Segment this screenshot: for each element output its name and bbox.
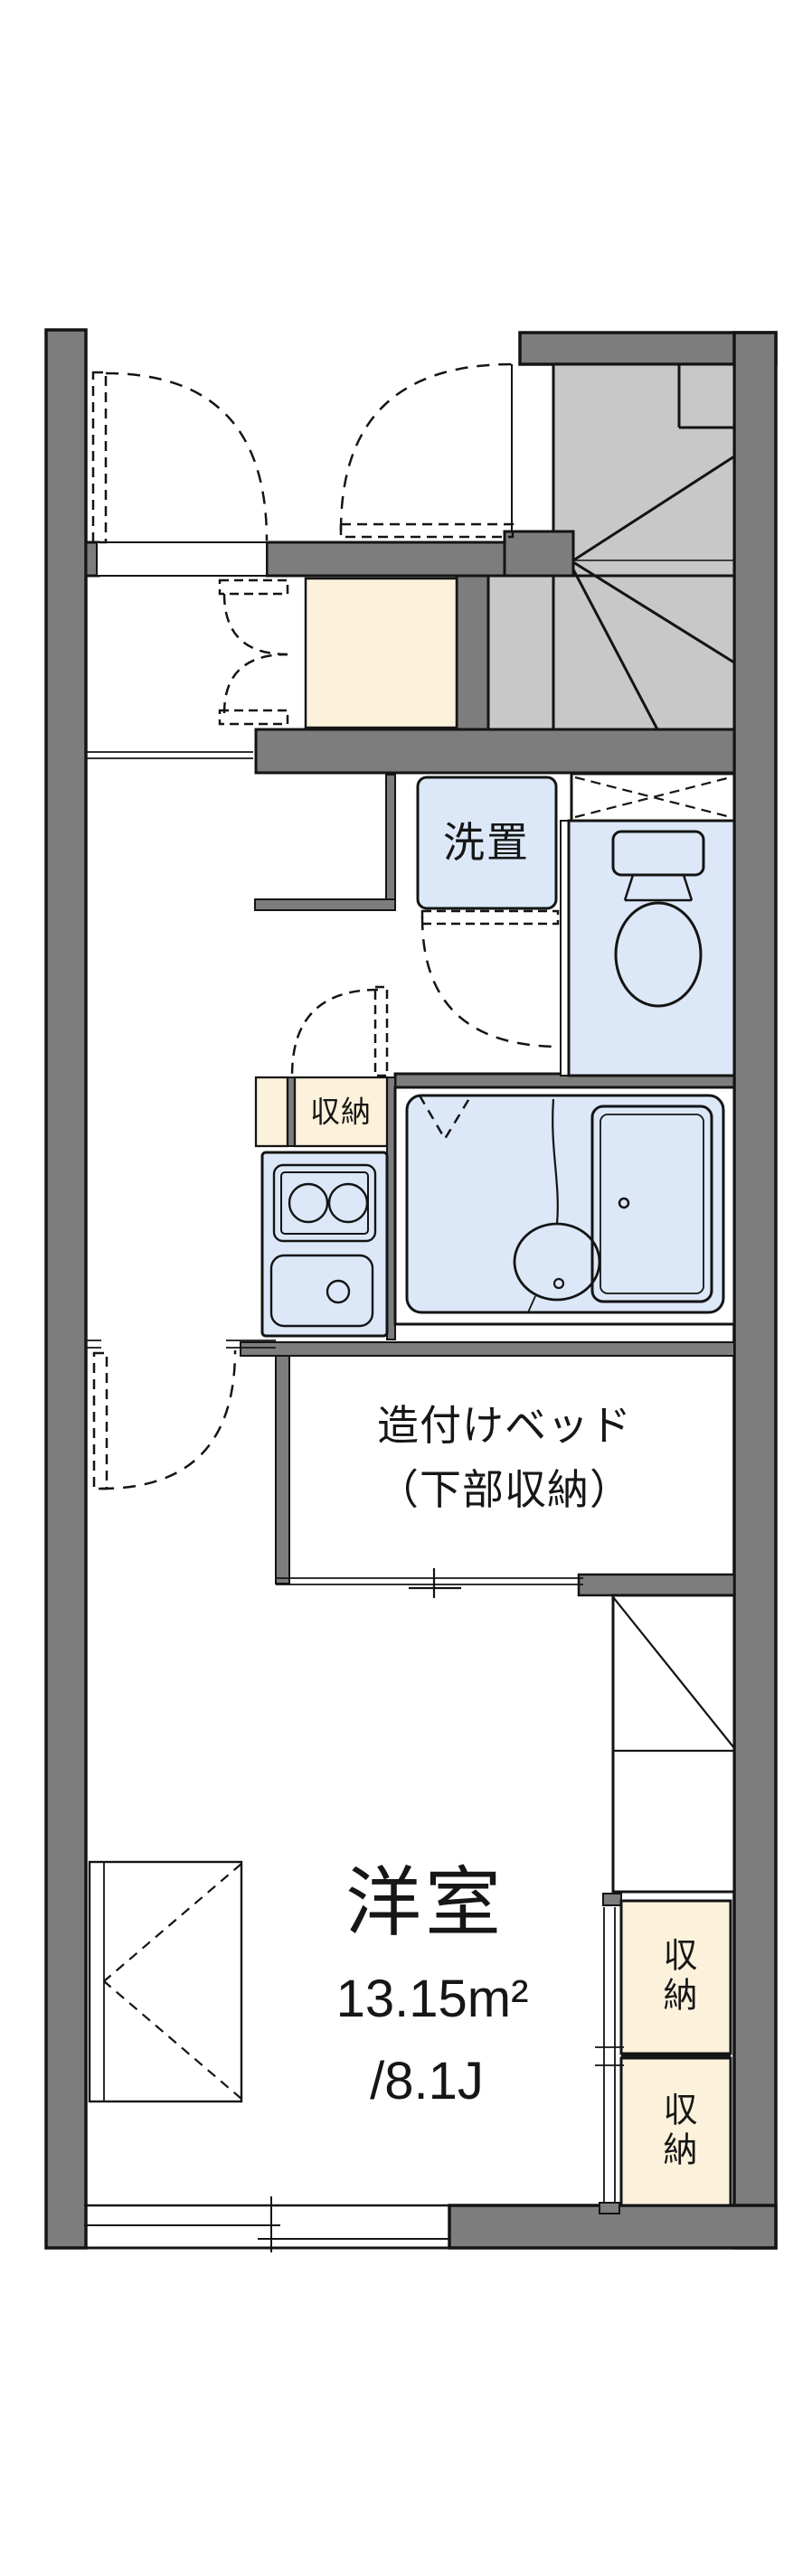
wall-washroom-left bbox=[386, 775, 395, 910]
kitchen-storage-small bbox=[256, 1077, 288, 1146]
bottom-window bbox=[46, 2196, 449, 2252]
entry-door-left bbox=[93, 372, 267, 542]
western-room-area-jo: /8.1J bbox=[370, 2055, 484, 2108]
storage-lower-label: 収納 bbox=[659, 2092, 694, 2171]
wall-bed-bottom-right bbox=[579, 1575, 734, 1595]
bed-label-line2: （下部収納） bbox=[377, 1469, 632, 1510]
wall-left bbox=[46, 330, 86, 2248]
wall-entry-mid bbox=[267, 542, 520, 576]
storage-upper-label: 収納 bbox=[659, 1937, 694, 2017]
genkan-floor bbox=[306, 578, 457, 728]
wall-bed-top bbox=[241, 1342, 734, 1356]
window-alcove bbox=[90, 1862, 241, 2101]
storage-track-ticks bbox=[595, 2047, 624, 2065]
western-room-area-m2: 13.15m² bbox=[336, 1973, 529, 2026]
toilet-room bbox=[561, 774, 734, 1076]
wall-track-bottom-block bbox=[600, 2203, 619, 2214]
washroom-door bbox=[422, 911, 561, 1047]
stairs-upper bbox=[553, 364, 734, 576]
wall-track-top-block bbox=[603, 1894, 621, 1905]
toilet-floor bbox=[569, 821, 734, 1076]
wall-hall-bottom bbox=[256, 729, 734, 773]
bed-bottom-ticks bbox=[409, 1568, 461, 1598]
corridor-ldk-door bbox=[292, 987, 387, 1076]
storage-door-track bbox=[604, 1907, 615, 2203]
bed-label-line1: 造付けベッド bbox=[377, 1405, 632, 1446]
stair-newel-cap bbox=[505, 531, 573, 576]
wall-genkan-right bbox=[457, 576, 491, 729]
entry-door-main bbox=[341, 364, 513, 537]
stairs-lower bbox=[488, 576, 734, 729]
wall-bed-left bbox=[276, 1356, 289, 1584]
kitchen-storage-label: 収納 bbox=[310, 1097, 372, 1127]
floorplan-canvas: 洗置 収納 造付けベッド （下部収納） 洋室 13.15m² /8.1J 収納 … bbox=[0, 0, 812, 2576]
entry-threshold bbox=[97, 542, 267, 576]
western-room-door bbox=[94, 1350, 235, 1489]
shelf-box bbox=[571, 774, 734, 821]
wall-kitchen-box-divider bbox=[288, 1077, 295, 1146]
staircase bbox=[488, 364, 734, 729]
genkan-step-edge bbox=[86, 752, 253, 758]
unit-bath bbox=[407, 1095, 723, 1312]
western-room-label: 洋室 bbox=[345, 1865, 505, 1941]
entry-closet-doors bbox=[220, 580, 288, 724]
wall-right bbox=[734, 333, 776, 2248]
tall-cabinet bbox=[613, 1595, 734, 1892]
bathroom bbox=[395, 1087, 734, 1324]
floorplan-drawing bbox=[0, 0, 812, 2576]
wall-washroom-ell bbox=[255, 899, 395, 910]
bed-bottom-lines bbox=[276, 1578, 583, 1584]
laundry-label: 洗置 bbox=[443, 822, 530, 863]
